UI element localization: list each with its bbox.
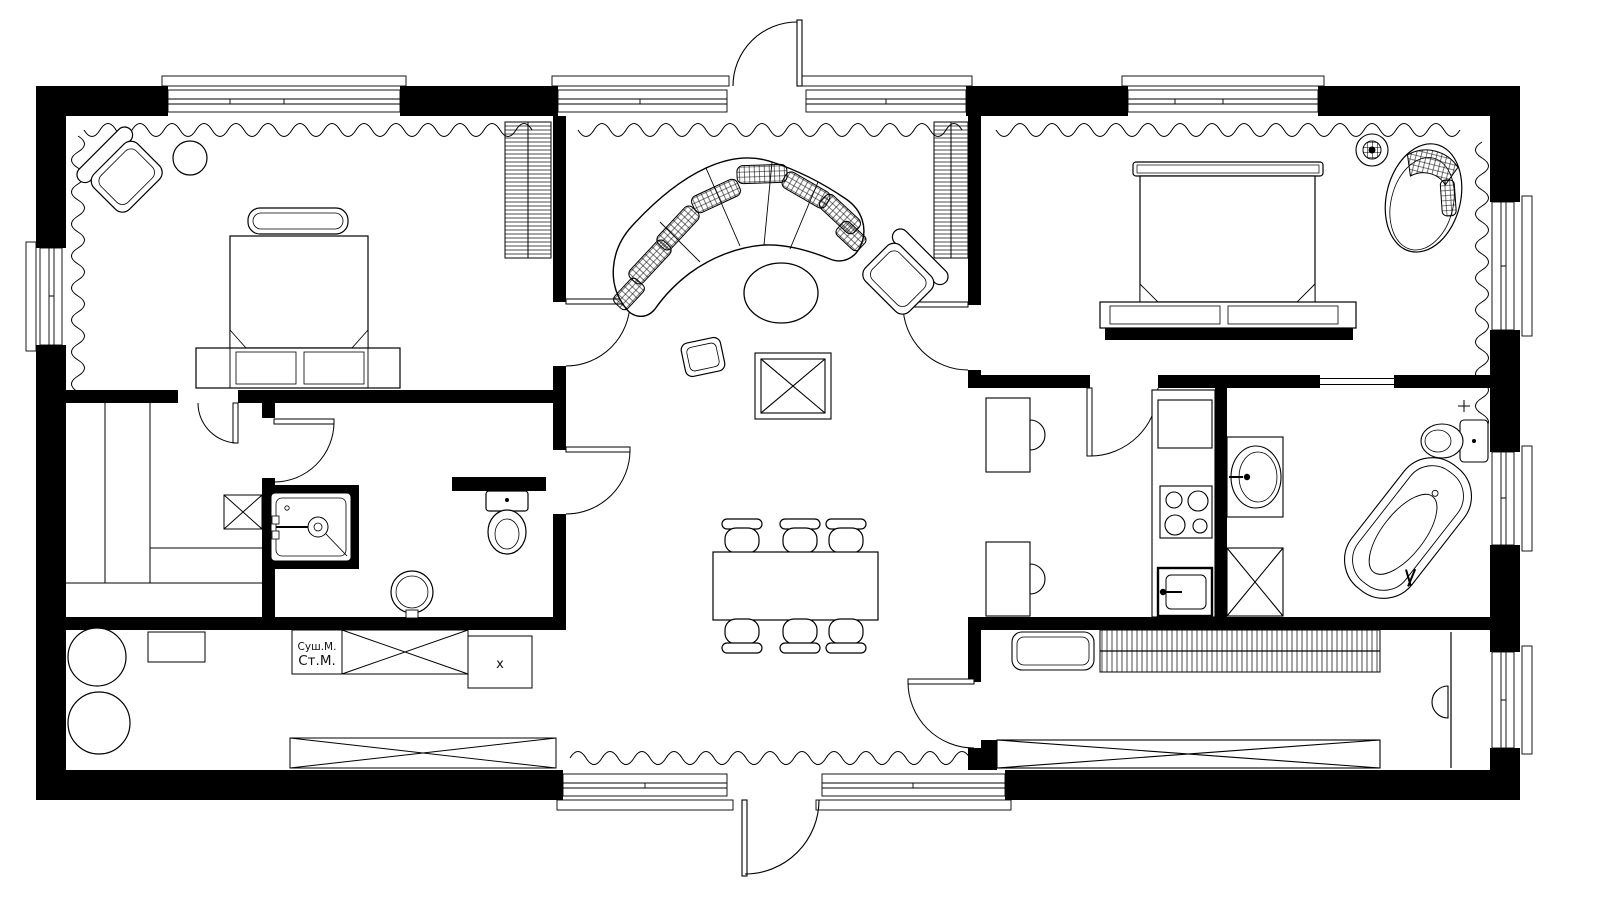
door-closet — [198, 403, 238, 443]
desk-2 — [986, 542, 1030, 616]
bench-hallway — [1012, 632, 1094, 670]
dryer-label: Суш.М. — [298, 641, 337, 653]
toilet-shower-room — [486, 491, 528, 554]
door-closet-shower — [274, 419, 334, 482]
window-bedroom-right — [1122, 76, 1324, 112]
bathtub — [1330, 443, 1486, 613]
radiator-hallway — [1100, 630, 1380, 672]
door-shower-room — [566, 447, 630, 514]
foot-bench-left-bed — [196, 348, 400, 388]
bed-right — [1100, 162, 1356, 328]
window-living-right — [800, 76, 972, 112]
kitchen — [986, 390, 1215, 617]
curtain-bedroom-right-top — [996, 124, 1460, 137]
door-hallway-room — [908, 679, 974, 748]
stove — [1160, 486, 1212, 538]
desk-chair-1 — [1030, 420, 1045, 450]
window-hall-bottom-right — [816, 774, 1011, 810]
washer-label: Ст.М. — [298, 653, 336, 669]
dining-chair — [722, 619, 762, 653]
radiator-bedroom-left — [505, 122, 551, 258]
entry-door-top — [733, 20, 802, 86]
window-hall-bottom-left — [557, 774, 733, 810]
entry-door-bottom — [742, 800, 819, 876]
curtain-hall-bottom — [570, 752, 1002, 765]
window-bedroom-right-side — [1492, 196, 1532, 336]
dining-chair — [826, 519, 866, 553]
window-living-left — [552, 76, 729, 112]
floor-plan: Суш.М. Ст.М. x — [0, 0, 1600, 904]
desk-chair-hallway — [1432, 686, 1448, 718]
wardrobe-long-right — [997, 740, 1380, 768]
side-table — [173, 141, 207, 175]
dining-chair — [722, 519, 762, 553]
curtain-living-top — [578, 124, 962, 137]
bathroom — [1227, 400, 1488, 616]
kitchen-upper-cabinet — [1158, 400, 1212, 448]
dining-chair — [780, 619, 820, 653]
desk-1 — [986, 398, 1030, 472]
pouf-2 — [68, 692, 130, 754]
washer-dryer-unit: Суш.М. Ст.М. — [292, 630, 342, 674]
door-bedroom-left — [566, 299, 630, 366]
wardrobe-long-left — [290, 738, 556, 768]
door-kitchen — [1087, 388, 1158, 456]
pouf-living — [680, 336, 726, 378]
window-bathroom — [1492, 446, 1532, 551]
kitchen-sink — [1158, 568, 1212, 616]
curtain-bedroom-left-top — [84, 124, 532, 137]
cabinet-x: x — [468, 636, 532, 688]
crossed-unit-closet — [224, 495, 262, 529]
window-hallway — [1492, 646, 1532, 754]
dining-set — [713, 519, 878, 653]
foot-bench-right-bed — [1100, 302, 1356, 328]
toilet-bathroom — [1421, 400, 1488, 462]
laundry-cabinet-small — [148, 632, 205, 662]
coffee-table-round — [744, 263, 818, 323]
pouf-1 — [68, 628, 126, 686]
dining-table — [713, 552, 878, 620]
window-bedroom-left — [162, 76, 406, 112]
sofa-modular — [612, 158, 869, 316]
shower-unit — [263, 485, 359, 569]
pedestal-sink — [391, 571, 433, 618]
egg-chair — [1374, 136, 1472, 261]
vanity — [1227, 437, 1283, 517]
wardrobe-crossed-laundry — [342, 630, 468, 674]
desk-chair-2 — [1030, 564, 1045, 594]
threshold-bathroom — [1320, 379, 1394, 385]
curtain-bedroom-right-side — [1476, 142, 1489, 446]
window-left-wall — [26, 242, 62, 351]
tv-console — [1105, 328, 1353, 340]
cabinet-x-label: x — [496, 657, 504, 672]
dining-chair — [780, 519, 820, 553]
bed-left — [196, 208, 400, 388]
ceiling-speaker — [1356, 134, 1388, 166]
armchair-left-bedroom — [74, 124, 170, 220]
cabinet-crossed-bathroom — [1227, 548, 1283, 616]
radiator-living — [934, 122, 968, 258]
door-bedroom-right — [903, 302, 968, 370]
dining-chair — [826, 619, 866, 653]
crossed-table — [755, 353, 831, 419]
